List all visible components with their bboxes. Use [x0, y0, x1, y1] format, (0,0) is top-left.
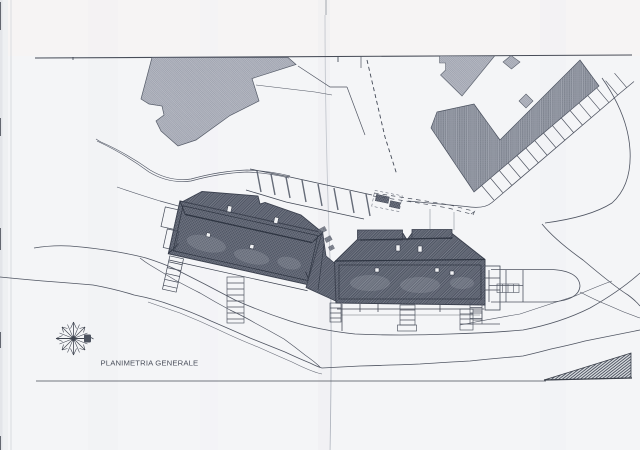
svg-text:PLANIMETRIA GENERALE: PLANIMETRIA GENERALE: [101, 359, 199, 368]
